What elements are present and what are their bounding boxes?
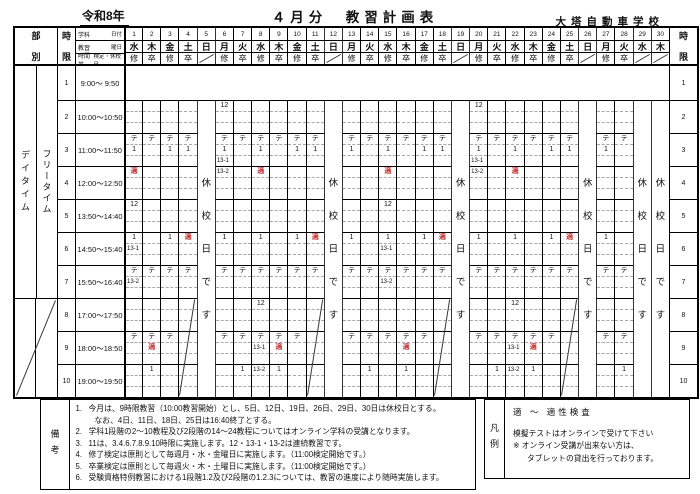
schedule-subrow xyxy=(361,254,378,265)
schedule-subrow xyxy=(561,111,578,122)
schedule-subrow xyxy=(307,200,324,210)
schedule-subrow xyxy=(434,243,451,254)
schedule-subrow: 適 xyxy=(379,167,396,177)
schedule-subrow xyxy=(126,188,142,199)
closed-day-text: で xyxy=(579,266,596,299)
schedule-subrow xyxy=(506,210,523,221)
schedule-cell xyxy=(614,166,632,199)
schedule-subrow xyxy=(379,386,396,397)
schedule-cell: テ1 xyxy=(287,133,305,166)
closed-day-text: で xyxy=(198,266,215,299)
schedule-subrow: テ xyxy=(216,332,233,342)
remark-text: 学科1段階の2～10教程及び2段階の14～24教程についてはオンライン学科の受講… xyxy=(89,426,415,438)
day-of-week: 日 xyxy=(578,40,596,52)
schedule-subrow: テ xyxy=(561,266,578,276)
closed-day-text: 校 xyxy=(579,200,596,233)
schedule-subrow xyxy=(126,299,142,309)
schedule-subrow xyxy=(216,299,233,309)
schedule-subrow xyxy=(488,233,505,243)
schedule-subrow xyxy=(234,144,251,155)
schedule-subrow xyxy=(126,210,142,221)
schedule-cell: テ xyxy=(596,331,614,364)
remark-text: 卒業検定は原則として毎週火・木・土曜日に実施します。（11:00検定開始です。） xyxy=(89,461,371,473)
remark-number: 6. xyxy=(76,472,89,484)
schedule-subrow xyxy=(615,221,632,232)
schedule-subrow xyxy=(179,111,196,122)
day-of-week: 金 xyxy=(287,40,305,52)
exam-mark: 卒 xyxy=(396,52,414,64)
schedule-subrow xyxy=(561,287,578,298)
schedule-subrow xyxy=(234,375,251,386)
schedule-subrow xyxy=(416,167,433,177)
schedule-subrow: 適 xyxy=(179,233,196,243)
schedule-cell: テ xyxy=(542,265,560,298)
schedule-subrow: テ xyxy=(361,266,378,276)
schedule-subrow xyxy=(597,309,614,320)
schedule-subrow xyxy=(307,299,324,309)
schedule-subrow xyxy=(179,210,196,221)
schedule-subrow: 1 xyxy=(597,233,614,243)
freetime-label: フリータイム xyxy=(36,64,57,298)
period-number-left: 2 xyxy=(57,100,75,133)
schedule-subrow: テ xyxy=(361,332,378,342)
schedule-subrow: テ xyxy=(161,266,178,276)
schedule-subrow xyxy=(379,342,396,353)
schedule-subrow xyxy=(270,111,287,122)
schedule-subrow xyxy=(161,155,178,166)
schedule-subrow: 1 xyxy=(126,233,142,243)
schedule-subrow: テ xyxy=(561,134,578,144)
schedule-subrow xyxy=(161,365,178,375)
day-of-week: 火 xyxy=(487,40,505,52)
period-number-left: 6 xyxy=(57,232,75,265)
schedule-subrow: テ xyxy=(161,332,178,342)
schedule-cell: テ xyxy=(215,265,233,298)
schedule-cell xyxy=(287,364,305,397)
schedule-subrow xyxy=(143,221,160,232)
schedule-subrow: テ xyxy=(506,332,523,342)
schedule-cell xyxy=(614,100,632,133)
schedule-cell: 適 xyxy=(306,232,324,265)
schedule-subrow xyxy=(416,111,433,122)
schedule-subrow xyxy=(615,287,632,298)
day-number: 18 xyxy=(433,28,451,40)
schedule-subrow xyxy=(397,299,414,309)
schedule-subrow xyxy=(179,365,196,375)
exam-mark: 卒 xyxy=(178,52,196,64)
schedule-cell: テ xyxy=(215,331,233,364)
schedule-subrow xyxy=(179,299,196,309)
closed-day-text: す xyxy=(652,299,669,332)
exam-mark: 卒 xyxy=(360,52,378,64)
schedule-subrow xyxy=(434,332,451,342)
schedule-subrow xyxy=(561,276,578,287)
schedule-subrow xyxy=(470,386,487,397)
schedule-subrow xyxy=(543,155,560,166)
schedule-subrow: テ xyxy=(543,134,560,144)
schedule-subrow xyxy=(234,221,251,232)
day-number: 13 xyxy=(342,28,360,40)
schedule-subrow xyxy=(161,221,178,232)
schedule-subrow xyxy=(561,332,578,342)
schedule-subrow: テ xyxy=(416,134,433,144)
schedule-subrow: テ xyxy=(234,134,251,144)
schedule-subrow xyxy=(561,122,578,133)
schedule-subrow: 1 xyxy=(216,144,233,155)
schedule-subrow xyxy=(615,155,632,166)
schedule-cell xyxy=(342,166,360,199)
schedule-cell xyxy=(469,199,487,232)
schedule-cell: テ xyxy=(124,331,142,364)
schedule-subrow xyxy=(343,122,360,133)
schedule-subrow xyxy=(470,287,487,298)
schedule-subrow xyxy=(615,122,632,133)
schedule-subrow xyxy=(126,101,142,111)
closed-day-text: す xyxy=(634,299,651,332)
closed-day-text: 休 xyxy=(579,167,596,200)
schedule-cell xyxy=(614,232,632,265)
schedule-subrow xyxy=(434,101,451,111)
schedule-subrow: テ xyxy=(525,266,542,276)
period-time: 10:00～10:50 xyxy=(75,100,124,133)
schedule-subrow xyxy=(307,309,324,320)
schedule-cell: テ適 xyxy=(142,331,160,364)
schedule-subrow xyxy=(179,200,196,210)
closed-day-text: す xyxy=(325,299,342,332)
schedule-subrow xyxy=(488,287,505,298)
schedule-subrow xyxy=(525,122,542,133)
schedule-subrow xyxy=(216,210,233,221)
schedule-subrow: 13-2 xyxy=(126,276,142,287)
schedule-cell: 1 xyxy=(469,232,487,265)
schedule-cell: テ xyxy=(560,265,578,298)
schedule-subrow: テ xyxy=(234,266,251,276)
schedule-subrow xyxy=(288,309,305,320)
schedule-cell: 113-1 xyxy=(124,232,142,265)
closed-day-text: 校 xyxy=(652,200,669,233)
schedule-cell xyxy=(487,100,505,133)
remark-item: 1.今月は、9時限教習（10:00教習開始）とし、5日、12日、19日、26日、… xyxy=(76,403,469,426)
schedule-cell: テ xyxy=(469,331,487,364)
exam-mark: 卒 xyxy=(487,52,505,64)
schedule-subrow: テ xyxy=(143,266,160,276)
remark-item: 4.修了検定は原則として毎週月・水・金曜日に実施します。（11:00検定開始です… xyxy=(76,449,469,461)
schedule-subrow xyxy=(161,188,178,199)
day-number: 28 xyxy=(614,28,632,40)
schedule-subrow xyxy=(343,309,360,320)
schedule-subrow xyxy=(488,122,505,133)
schedule-subrow xyxy=(126,386,142,397)
schedule-subrow xyxy=(288,155,305,166)
schedule-subrow xyxy=(252,200,269,210)
schedule-subrow xyxy=(561,177,578,188)
schedule-subrow xyxy=(252,101,269,111)
schedule-subrow xyxy=(307,386,324,397)
exam-mark: 修 xyxy=(251,52,269,64)
schedule-subrow xyxy=(307,101,324,111)
schedule-subrow xyxy=(561,200,578,210)
schedule-subrow xyxy=(615,309,632,320)
schedule-subrow: 適 xyxy=(126,167,142,177)
schedule-cell: テ xyxy=(487,265,505,298)
schedule-cell: 13-2 xyxy=(469,166,487,199)
schedule-subrow xyxy=(161,287,178,298)
schedule-subrow: 1 xyxy=(543,144,560,155)
schedule-cell xyxy=(287,298,305,331)
schedule-subrow xyxy=(470,320,487,331)
schedule-subrow xyxy=(343,254,360,265)
schedule-subrow xyxy=(470,210,487,221)
schedule-cell: テ13-2 xyxy=(124,265,142,298)
schedule-subrow xyxy=(506,243,523,254)
schedule-subrow xyxy=(161,177,178,188)
schedule-subrow: 1 xyxy=(307,144,324,155)
schedule-subrow xyxy=(252,386,269,397)
schedule-subrow xyxy=(470,353,487,364)
schedule-subrow xyxy=(143,299,160,309)
schedule-subrow: テ xyxy=(506,134,523,144)
schedule-subrow xyxy=(143,320,160,331)
schedule-cell: 1 xyxy=(487,364,505,397)
schedule-subrow xyxy=(343,177,360,188)
schedule-cell xyxy=(215,298,233,331)
schedule-cell: テ1 xyxy=(178,133,196,166)
schedule-subrow xyxy=(270,309,287,320)
schedule-subrow xyxy=(361,111,378,122)
schedule-subrow xyxy=(543,287,560,298)
schedule-subrow xyxy=(270,276,287,287)
schedule-subrow xyxy=(216,188,233,199)
schedule-subrow xyxy=(543,254,560,265)
schedule-cell xyxy=(178,298,196,331)
remark-item: 6.受験資格特例教習における1段階1.2及び2段階の1.2.3については、教習の… xyxy=(76,472,469,484)
closed-day-text: す xyxy=(198,299,215,332)
schedule-subrow xyxy=(561,188,578,199)
schedule-cell xyxy=(433,166,451,199)
schedule-subrow xyxy=(488,101,505,111)
schedule-subrow: 13-2 xyxy=(470,167,487,177)
schedule-subrow xyxy=(126,309,142,320)
schedule-cell xyxy=(433,331,451,364)
schedule-subrow xyxy=(361,342,378,353)
period-number-left: 4 xyxy=(57,166,75,199)
schedule-subrow xyxy=(615,188,632,199)
schedule-subrow xyxy=(416,299,433,309)
schedule-cell xyxy=(542,100,560,133)
schedule-subrow xyxy=(343,101,360,111)
schedule-subrow xyxy=(270,200,287,210)
schedule-cell: 適 xyxy=(505,166,523,199)
schedule-subrow xyxy=(561,353,578,364)
day-of-week: 月 xyxy=(215,40,233,52)
schedule-cell xyxy=(178,100,196,133)
schedule-subrow xyxy=(252,188,269,199)
schedule-cell: テ xyxy=(287,265,305,298)
schedule-cell xyxy=(524,100,542,133)
schedule-subrow xyxy=(252,111,269,122)
schedule-cell xyxy=(342,364,360,397)
schedule-subrow xyxy=(161,167,178,177)
schedule-subrow xyxy=(525,233,542,243)
schedule-subrow xyxy=(361,101,378,111)
schedule-subrow xyxy=(397,144,414,155)
schedule-cell: テ適 xyxy=(269,331,287,364)
schedule-cell: テ xyxy=(433,265,451,298)
remark-item: 5.卒業検定は原則として毎週火・木・土曜日に実施します。（11:00検定開始です… xyxy=(76,461,469,473)
schedule-subrow xyxy=(416,320,433,331)
schedule-subrow xyxy=(397,254,414,265)
period-number-right: 4 xyxy=(669,166,697,199)
schedule-subrow xyxy=(126,287,142,298)
schedule-subrow xyxy=(361,221,378,232)
schedule-subrow xyxy=(161,299,178,309)
schedule-subrow: テ xyxy=(216,134,233,144)
schedule-subrow: テ xyxy=(379,134,396,144)
schedule-cell: テ xyxy=(251,265,269,298)
schedule-cell: テ xyxy=(396,133,414,166)
schedule-subrow xyxy=(126,320,142,331)
schedule-subrow xyxy=(416,221,433,232)
exam-mark: 修 xyxy=(124,52,142,64)
period-time: 13:50～14:40 xyxy=(75,199,124,232)
schedule-subrow xyxy=(488,155,505,166)
day-number: 22 xyxy=(505,28,523,40)
day-number: 23 xyxy=(524,28,542,40)
schedule-subrow xyxy=(161,353,178,364)
closed-day-text: 休 xyxy=(325,167,342,200)
schedule-subrow: 1 xyxy=(288,233,305,243)
schedule-subrow xyxy=(143,254,160,265)
schedule-subrow xyxy=(307,254,324,265)
schedule-cell: テ xyxy=(160,265,178,298)
schedule-subrow xyxy=(434,177,451,188)
schedule-subrow: テ xyxy=(179,134,196,144)
schedule-subrow xyxy=(179,276,196,287)
schedule-subrow xyxy=(615,353,632,364)
schedule-cell xyxy=(342,100,360,133)
schedule-subrow xyxy=(234,243,251,254)
schedule-subrow xyxy=(597,210,614,221)
schedule-subrow xyxy=(488,210,505,221)
exam-mark: 修 xyxy=(342,52,360,64)
schedule-subrow xyxy=(179,177,196,188)
schedule-subrow xyxy=(397,188,414,199)
schedule-subrow: 1 xyxy=(379,144,396,155)
schedule-subrow xyxy=(379,210,396,221)
schedule-cell xyxy=(487,166,505,199)
schedule-subrow: 1 xyxy=(270,365,287,375)
schedule-subrow xyxy=(543,167,560,177)
schedule-subrow xyxy=(307,177,324,188)
schedule-subrow xyxy=(234,276,251,287)
schedule-subrow xyxy=(270,144,287,155)
schedule-subrow: テ xyxy=(252,332,269,342)
schedule-subrow xyxy=(126,365,142,375)
schedule-subrow xyxy=(179,188,196,199)
closed-day-text: 休 xyxy=(452,167,469,200)
schedule-sheet: 令和8年 ４月分 教習計画表 大塔自動車学校 部別 時限 学科日付教習曜日時間帯… xyxy=(0,0,700,494)
exam-mark: 卒 xyxy=(524,52,542,64)
schedule-subrow: テ xyxy=(252,134,269,144)
schedule-subrow xyxy=(288,221,305,232)
schedule-cell xyxy=(524,199,542,232)
closed-day-text: 校 xyxy=(634,200,651,233)
schedule-cell xyxy=(142,232,160,265)
schedule-subrow xyxy=(597,243,614,254)
schedule-subrow: 12 xyxy=(470,101,487,111)
schedule-cell xyxy=(142,199,160,232)
schedule-subrow xyxy=(470,375,487,386)
schedule-subrow xyxy=(361,287,378,298)
schedule-subrow xyxy=(288,200,305,210)
period-number-left: 5 xyxy=(57,199,75,232)
schedule-subrow xyxy=(525,177,542,188)
schedule-subrow xyxy=(288,365,305,375)
schedule-subrow: テ xyxy=(307,266,324,276)
remarks-list: 1.今月は、9時限教習（10:00教習開始）とし、5日、12日、19日、26日、… xyxy=(69,399,476,490)
schedule-subrow xyxy=(143,276,160,287)
schedule-subrow: テ xyxy=(270,266,287,276)
schedule-cell: 12 xyxy=(378,199,396,232)
schedule-cell: テ xyxy=(396,265,414,298)
closed-day-slash-icon xyxy=(197,52,215,64)
schedule-subrow xyxy=(397,309,414,320)
period-number-left: 10 xyxy=(57,364,75,397)
schedule-subrow xyxy=(506,177,523,188)
day-number: 15 xyxy=(378,28,396,40)
schedule-subrow xyxy=(179,155,196,166)
schedule-subrow xyxy=(397,200,414,210)
schedule-cell xyxy=(396,199,414,232)
schedule-cell xyxy=(269,298,287,331)
legend-label-text: 凡例 xyxy=(488,423,501,455)
schedule-subrow xyxy=(615,200,632,210)
schedule-subrow xyxy=(543,342,560,353)
schedule-subrow xyxy=(307,167,324,177)
schedule-subrow xyxy=(506,287,523,298)
schedule-subrow xyxy=(434,353,451,364)
period-column-header-left: 時限 xyxy=(57,28,75,64)
schedule-subrow: 1 xyxy=(434,144,451,155)
schedule-subrow xyxy=(216,122,233,133)
schedule-cell: 1 xyxy=(342,232,360,265)
schedule-cell: 1 xyxy=(269,364,287,397)
schedule-cell: テ xyxy=(524,265,542,298)
schedule-subrow xyxy=(379,177,396,188)
schedule-subrow xyxy=(126,342,142,353)
schedule-subrow xyxy=(434,365,451,375)
schedule-cell xyxy=(415,364,433,397)
schedule-subrow xyxy=(525,188,542,199)
schedule-cell: テ xyxy=(342,331,360,364)
schedule-subrow: 適 xyxy=(252,167,269,177)
footer-section: 備考 1.今月は、9時限教習（10:00教習開始）とし、5日、12日、19日、2… xyxy=(40,399,690,490)
schedule-subrow xyxy=(543,353,560,364)
schedule-subrow xyxy=(161,254,178,265)
page-title: ４月分 教習計画表 xyxy=(272,6,439,26)
schedule-subrow xyxy=(525,353,542,364)
schedule-subrow xyxy=(288,177,305,188)
schedule-subrow: テ xyxy=(397,332,414,342)
schedule-subrow xyxy=(161,210,178,221)
schedule-cell xyxy=(360,298,378,331)
schedule-subrow xyxy=(416,101,433,111)
day-number: 14 xyxy=(360,28,378,40)
schedule-subrow xyxy=(615,254,632,265)
schedule-subrow xyxy=(179,375,196,386)
schedule-subrow xyxy=(252,287,269,298)
schedule-subrow xyxy=(434,342,451,353)
